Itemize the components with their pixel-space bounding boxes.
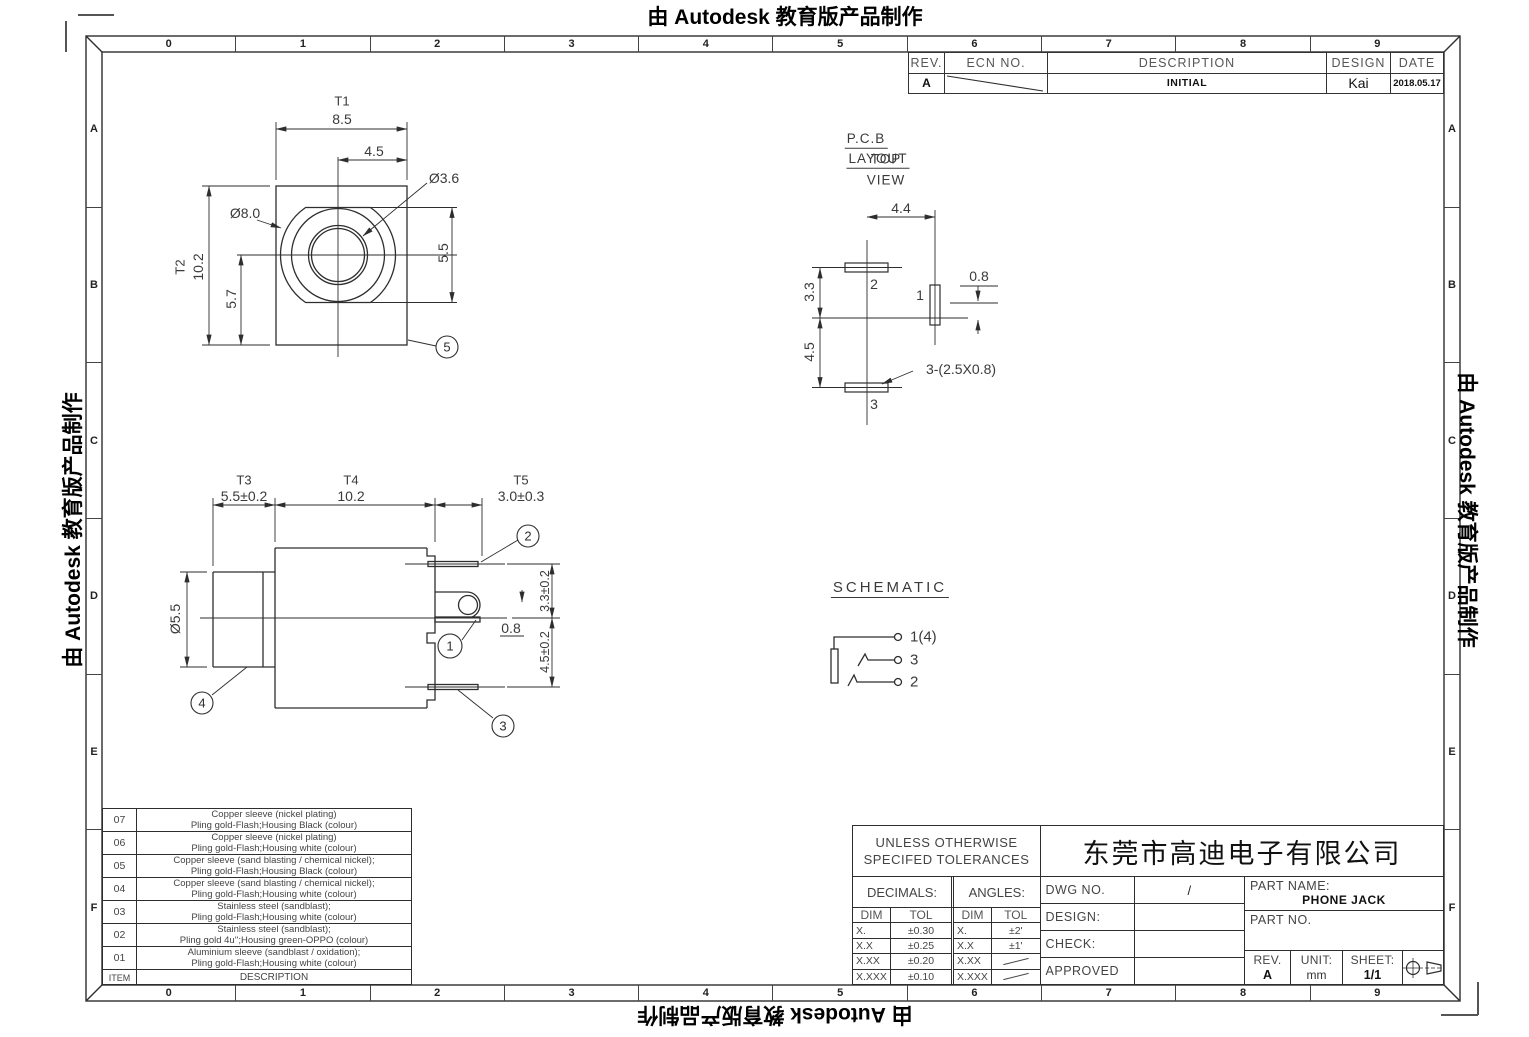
side-view-linework <box>180 498 560 737</box>
front-t2-value: 10.2 <box>191 253 205 280</box>
pcb-pin2-label: 2 <box>870 277 878 291</box>
front-dim-4-5: 4.5 <box>364 144 383 158</box>
pcb-title-line3: VIEW <box>867 173 906 187</box>
check-label: CHECK: <box>1041 931 1135 957</box>
description-header: DESCRIPTION <box>1048 53 1327 73</box>
balloon-3: 3 <box>499 720 506 733</box>
watermark-right: 由 Autodesk 教育版产品制作 <box>1453 372 1483 647</box>
side-dim-4-5: 4.5±0.2 <box>539 631 552 673</box>
watermark-bottom: 由 Autodesk 教育版产品制作 <box>637 1001 912 1031</box>
pcb-title-overlay: TOP <box>871 152 902 166</box>
approvals-column: DWG NO. / DESIGN: CHECK: APPROVED <box>1041 877 1245 984</box>
approved-value <box>1135 958 1244 984</box>
pcb-pin3-label: 3 <box>870 397 878 411</box>
watermark-top: 由 Autodesk 教育版产品制作 <box>647 1 922 31</box>
item-number: 02 <box>103 924 137 946</box>
side-dia-5-5: Ø5.5 <box>168 604 182 634</box>
check-value <box>1135 931 1244 957</box>
item-number: 04 <box>103 878 137 900</box>
angles-table: DIM TOL X. ±2' X.X ±1' X.XX <box>951 908 1040 984</box>
front-dia-3-6: Ø3.6 <box>429 171 459 185</box>
angles-label: ANGLES: <box>951 877 1040 907</box>
approved-label: APPROVED <box>1041 958 1135 984</box>
side-t5-label: T5 <box>513 474 528 487</box>
dwg-no-label: DWG NO. <box>1041 877 1135 903</box>
revision-row-a: A INITIAL Kai 2018.05.17 <box>909 74 1443 94</box>
balloon-1: 1 <box>446 640 453 653</box>
schematic-pin2-label: 2 <box>910 675 918 690</box>
front-t2-label: T2 <box>174 259 187 274</box>
pcb-pin1-label: 1 <box>916 288 924 302</box>
tolerance-slash <box>1003 958 1029 965</box>
table-row: 03 Stainless steel (sandblast);Pling gol… <box>103 901 411 924</box>
table-row: 01 Aluminium sleeve (sandblast / oxidati… <box>103 947 411 970</box>
table-row: 07 Copper sleeve (nickel plating)Pling g… <box>103 809 411 832</box>
table-row: 05 Copper sleeve (sand blasting / chemic… <box>103 855 411 878</box>
revision-table: REV. ECN NO. DESCRIPTION DESIGN DATE A I… <box>908 52 1444 94</box>
tolerance-slash <box>1003 973 1029 980</box>
pcb-dim-3-3: 3.3 <box>802 282 816 301</box>
schematic-pin3-label: 3 <box>910 653 918 668</box>
revision-header-row: REV. ECN NO. DESCRIPTION DESIGN DATE <box>909 53 1443 74</box>
pcb-view-linework <box>812 210 998 425</box>
item-number: 06 <box>103 832 137 854</box>
pcb-dim-4-4: 4.4 <box>891 201 910 215</box>
part-no-label: PART NO. <box>1245 911 1443 927</box>
schematic-pin1-label: 1(4) <box>910 630 937 645</box>
ruler-top: 0 1 2 3 4 5 6 7 8 9 <box>102 36 1444 52</box>
schematic-linework <box>831 634 902 687</box>
table-row: 02 Stainless steel (sandblast);Pling gol… <box>103 924 411 947</box>
side-t3-label: T3 <box>236 474 251 487</box>
side-t3-value: 5.5±0.2 <box>221 489 268 503</box>
balloon-2: 2 <box>524 530 531 543</box>
table-row: 06 Copper sleeve (nickel plating)Pling g… <box>103 832 411 855</box>
item-header: ITEM <box>103 970 137 985</box>
description-header: DESCRIPTION <box>137 970 411 985</box>
sheet-label: SHEET: <box>1351 953 1395 967</box>
design-label: DESIGN: <box>1041 904 1135 930</box>
balloon-5: 5 <box>443 341 450 354</box>
item-number: 05 <box>103 855 137 877</box>
balloon-4: 4 <box>198 697 205 710</box>
company-name: 东莞市高迪电子有限公司 <box>1041 826 1443 876</box>
part-name-label: PART NAME: <box>1245 877 1443 893</box>
unit-value: mm <box>1307 968 1327 982</box>
ecn-header: ECN NO. <box>945 53 1048 73</box>
watermark-left: 由 Autodesk 教育版产品制作 <box>57 392 87 667</box>
pcb-dim-0-8: 0.8 <box>969 269 988 283</box>
title-block: UNLESS OTHERWISE SPECIFED TOLERANCES 东莞市… <box>852 825 1444 985</box>
pcb-title-line1: P.C.B <box>845 132 888 149</box>
sheet-value: 1/1 <box>1364 968 1381 982</box>
date-header: DATE <box>1391 53 1443 73</box>
decimals-table: DIM TOL X. ±0.30 X.X ±0.25 X.XX <box>853 908 951 984</box>
item-number: 01 <box>103 947 137 969</box>
pcb-dim-4-5: 4.5 <box>802 342 816 361</box>
ruler-bottom: 0 1 2 3 4 5 6 7 8 9 <box>102 985 1444 1001</box>
ecn-value <box>945 74 1048 94</box>
part-column: PART NAME: PHONE JACK PART NO. REV. A UN… <box>1245 877 1443 984</box>
dwg-no-value: / <box>1135 877 1244 903</box>
front-t1-label: T1 <box>334 95 349 108</box>
rev-value: A <box>1263 968 1272 982</box>
materials-table: 07 Copper sleeve (nickel plating)Pling g… <box>102 808 412 985</box>
projection-symbol-icon <box>1403 954 1443 982</box>
item-number: 07 <box>103 809 137 831</box>
decimals-label: DECIMALS: <box>853 877 951 907</box>
side-dim-0-8: 0.8 <box>501 621 520 635</box>
design-value: Kai <box>1327 74 1391 94</box>
tolerance-tables: DECIMALS: ANGLES: DIM TOL X. ±0.30 <box>853 877 1041 984</box>
rev-label: REV. <box>1253 953 1281 967</box>
side-t4-label: T4 <box>343 474 358 487</box>
design-header: DESIGN <box>1327 53 1391 73</box>
item-number: 03 <box>103 901 137 923</box>
schematic-title: SCHEMATIC <box>831 580 949 598</box>
front-dia-8-0: Ø8.0 <box>230 206 260 220</box>
drawing-sheet: 由 Autodesk 教育版产品制作 由 Autodesk 教育版产品制作 由 … <box>0 0 1529 1037</box>
unit-label: UNIT: <box>1301 953 1333 967</box>
front-t1-value: 8.5 <box>332 112 351 126</box>
date-value: 2018.05.17 <box>1391 74 1443 94</box>
rev-value: A <box>909 74 945 94</box>
rev-header: REV. <box>909 53 945 73</box>
table-row: 04 Copper sleeve (sand blasting / chemic… <box>103 878 411 901</box>
description-value: INITIAL <box>1048 74 1327 94</box>
ruler-left: A B C D E F <box>86 52 102 985</box>
side-t5-value: 3.0±0.3 <box>498 489 545 503</box>
side-dim-3-3: 3.3±0.2 <box>539 570 552 612</box>
table-header-row: ITEM DESCRIPTION <box>103 970 411 985</box>
tolerance-note: UNLESS OTHERWISE SPECIFED TOLERANCES <box>853 826 1041 876</box>
pcb-pad-note: 3-(2.5X0.8) <box>926 362 996 376</box>
front-dim-5-5: 5.5 <box>436 243 450 262</box>
design-value <box>1135 904 1244 930</box>
front-dim-5-7: 5.7 <box>224 289 238 308</box>
front-view-linework <box>202 122 458 358</box>
side-t4-value: 10.2 <box>337 489 364 503</box>
part-name-value: PHONE JACK <box>1302 893 1386 907</box>
